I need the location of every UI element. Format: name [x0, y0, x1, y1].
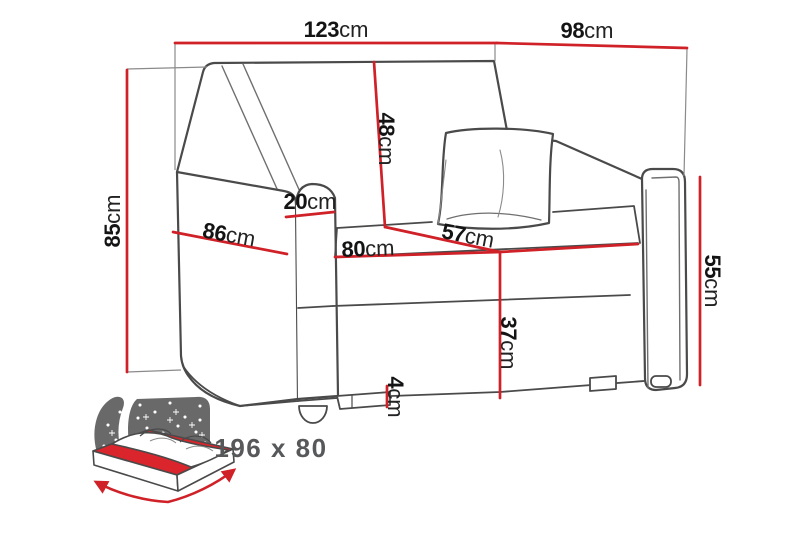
legs — [299, 376, 671, 423]
sleeping-area-label: 196 x 80 — [214, 435, 327, 461]
dim-label-armrest-height: 55cm — [701, 255, 723, 308]
front-left-leg — [299, 406, 327, 423]
dim-line-total-depth — [497, 43, 687, 48]
dim-label-total-height: 85cm — [102, 195, 124, 248]
right-armrest — [642, 169, 687, 390]
sofa-bed-icon — [93, 396, 234, 502]
dim-label-backrest-height: 48cm — [375, 113, 397, 166]
dim-label-armrest-width: 20cm — [284, 191, 337, 213]
dim-label-seat-width: 80cm — [341, 237, 395, 261]
dim-label-leg-height: 4cm — [384, 376, 406, 417]
dim-label-total-width: 123cm — [304, 19, 369, 41]
dim-label-total-depth: 98cm — [561, 20, 614, 42]
front-right-leg — [590, 376, 616, 391]
sofa-dimension-diagram: 123cm 98cm 85cm 48cm 20cm 86cm 80cm 57cm… — [0, 0, 800, 533]
right-leg — [651, 376, 671, 387]
dim-label-seat-height: 37cm — [497, 317, 519, 370]
diagram-drawing — [0, 0, 800, 533]
pillow — [438, 129, 553, 229]
